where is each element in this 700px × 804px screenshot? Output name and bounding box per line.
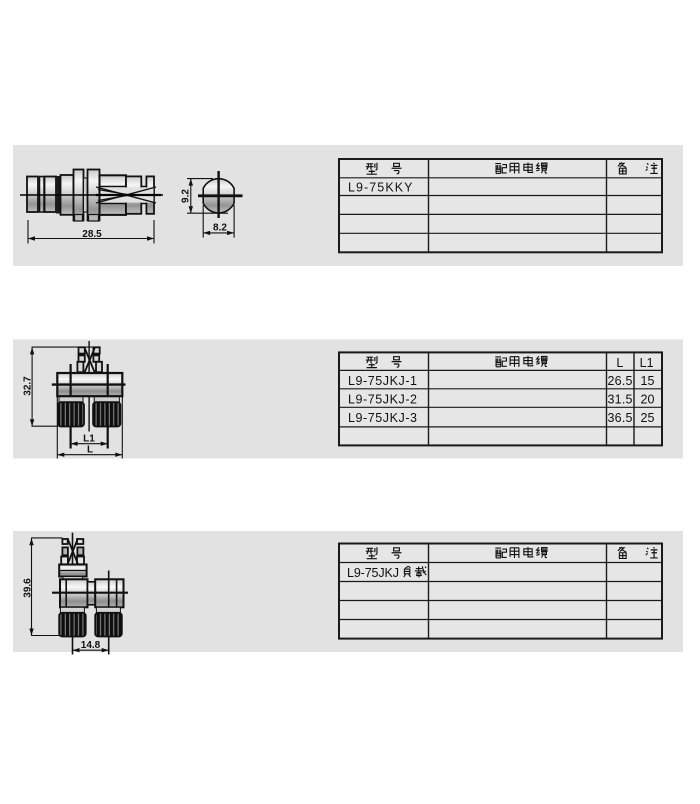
svg-text:36.5: 36.5 [608,411,633,425]
svg-text:39.6: 39.6 [22,578,33,598]
svg-text:32.7: 32.7 [22,376,33,396]
svg-text:8.2: 8.2 [213,223,227,234]
svg-text:L: L [87,445,93,456]
svg-text:L9-75JKJ-3: L9-75JKJ-3 [348,411,417,425]
svg-text:14.8: 14.8 [81,640,101,651]
svg-text:26.5: 26.5 [608,374,633,388]
svg-text:15: 15 [641,374,655,388]
svg-text:25: 25 [641,411,655,425]
svg-text:L: L [616,356,623,370]
svg-text:L9-75JKJ-1: L9-75JKJ-1 [348,374,417,388]
svg-text:L1: L1 [640,356,654,370]
svg-text:28.5: 28.5 [82,229,102,240]
svg-text:31.5: 31.5 [608,392,633,406]
svg-text:L1: L1 [83,434,95,445]
svg-text:L9-75KKY: L9-75KKY [348,181,413,195]
svg-text:L9-75JKJ: L9-75JKJ [347,566,399,580]
svg-text:9.2: 9.2 [181,189,192,203]
svg-text:L9-75JKJ-2: L9-75JKJ-2 [348,392,417,406]
svg-text:20: 20 [641,392,655,406]
